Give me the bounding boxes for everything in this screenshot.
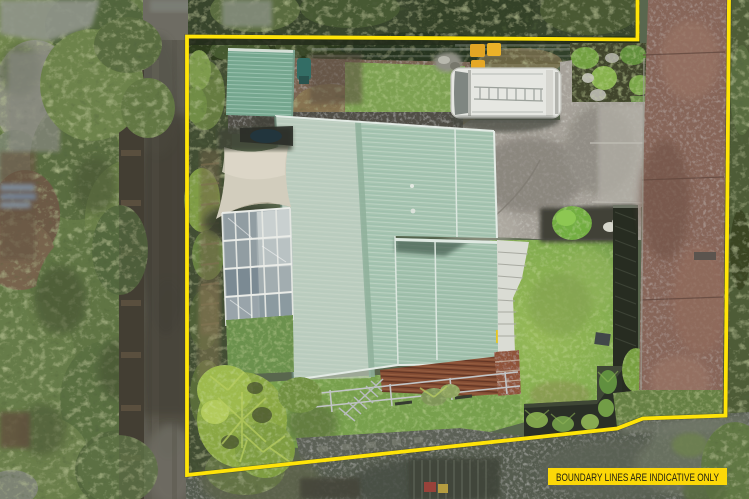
svg-text:BOUNDARY LINES ARE INDICATIVE: BOUNDARY LINES ARE INDICATIVE ONLY <box>556 472 719 484</box>
